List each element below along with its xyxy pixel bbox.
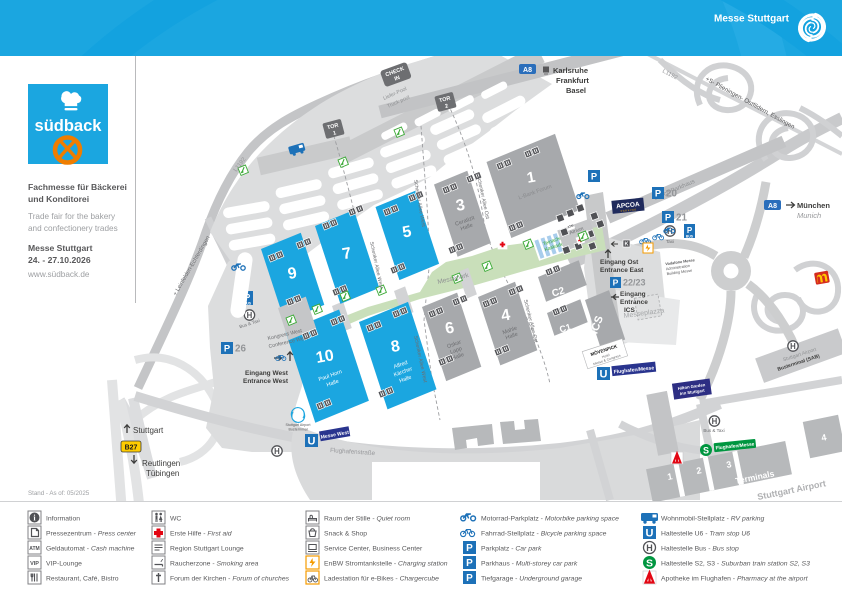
svg-text:Raucherzone - Smoking area: Raucherzone - Smoking area [170,561,259,568]
svg-text:P: P [665,212,671,222]
svg-text:südback: südback [35,117,103,135]
svg-text:Entrance West: Entrance West [243,378,289,385]
svg-text:VIP: VIP [30,561,39,567]
svg-text:Eingang: Eingang [620,291,646,298]
svg-text:Frankfurt: Frankfurt [556,76,589,85]
svg-text:A8: A8 [523,67,532,74]
svg-text:Bus & Taxi: Bus & Taxi [703,428,724,433]
svg-text:A8: A8 [768,203,777,210]
svg-text:Snack & Shop: Snack & Shop [324,531,367,538]
svg-text:Haltestelle U6 - Tram stop U6: Haltestelle U6 - Tram stop U6 [661,531,750,538]
svg-text:Fachmesse für Bäckerei: Fachmesse für Bäckerei [28,182,127,192]
svg-text:ATM: ATM [29,546,39,552]
svg-text:München: München [797,201,830,210]
svg-text:Tübingen: Tübingen [146,469,179,478]
svg-text:and confectionery trades: and confectionery trades [28,224,118,233]
svg-text:Karlsruhe: Karlsruhe [553,66,588,75]
svg-text:24. - 27.10.2026: 24. - 27.10.2026 [28,255,91,265]
svg-text:Forum der Kirchen - Forum of c: Forum der Kirchen - Forum of churches [170,576,290,583]
svg-text:P: P [613,278,619,288]
svg-text:Pressezentrum - Press center: Pressezentrum - Press center [46,531,137,538]
svg-text:und Konditorei: und Konditorei [28,194,89,204]
svg-text:Information: Information [46,516,80,523]
svg-text:www.südback.de: www.südback.de [27,270,90,279]
svg-text:H: H [790,342,796,351]
svg-text:10: 10 [315,347,336,367]
svg-text:Haltestelle Bus - Bus stop: Haltestelle Bus - Bus stop [661,546,739,553]
svg-text:Eingang Ost: Eingang Ost [600,259,639,266]
svg-text:Parkplatz - Car park: Parkplatz - Car park [481,546,542,553]
svg-text:Parkhaus - Multi-storey car pa: Parkhaus - Multi-storey car park [481,561,578,568]
svg-text:Busterminal: Busterminal [289,428,308,432]
svg-text:Messe Stuttgart: Messe Stuttgart [714,14,790,25]
svg-text:Messe Stuttgart: Messe Stuttgart [28,243,93,253]
svg-text:Raum der Stille - Quiet room: Raum der Stille - Quiet room [324,516,410,523]
svg-text:H: H [247,311,253,320]
svg-text:U: U [308,436,316,448]
svg-text:WC: WC [170,516,181,523]
svg-text:Eingang West: Eingang West [245,370,289,377]
svg-text:Stand - As of: 05/2025: Stand - As of: 05/2025 [28,490,90,497]
svg-text:Basel: Basel [566,86,586,95]
svg-text:H: H [712,417,718,426]
svg-text:K: K [625,242,629,248]
svg-text:P: P [224,343,230,353]
svg-text:Taxi: Taxi [666,239,674,244]
svg-text:Fahrrad-Stellplatz - Bicycle p: Fahrrad-Stellplatz - Bicycle parking spa… [481,531,607,538]
svg-text:Geldautomat - Cash machine: Geldautomat - Cash machine [46,546,135,553]
svg-text:20: 20 [666,188,677,199]
svg-text:BUS: BUS [686,235,694,239]
svg-text:U: U [600,369,608,381]
svg-text:Stuttgart: Stuttgart [133,426,164,435]
svg-text:Stuttgart Airport: Stuttgart Airport [286,423,311,427]
svg-text:Entrance: Entrance [620,299,648,306]
svg-text:Service Center, Business Cente: Service Center, Business Center [324,546,423,553]
svg-text:P: P [655,188,661,198]
svg-text:Trade fair for the bakery: Trade fair for the bakery [28,212,116,221]
svg-text:22/23: 22/23 [623,278,646,288]
svg-text:S: S [646,557,653,569]
svg-text:S: S [703,446,709,456]
svg-text:P: P [466,558,473,569]
svg-text:Wohnmobil-Stellplatz - RV park: Wohnmobil-Stellplatz - RV parking [661,516,764,523]
svg-text:U: U [646,528,654,540]
svg-text:Motorrad-Parkplatz - Motorbike: Motorrad-Parkplatz - Motorbike parking s… [481,516,619,523]
svg-text:P: P [466,543,473,554]
svg-text:VIP-Lounge: VIP-Lounge [46,561,82,568]
svg-text:21: 21 [676,212,687,223]
svg-text:EnBW Stromtankstelle - Chargin: EnBW Stromtankstelle - Charging station [324,561,448,568]
svg-text:Restaurant, Café, Bistro: Restaurant, Café, Bistro [46,576,119,583]
svg-text:Region Stuttgart Lounge: Region Stuttgart Lounge [170,546,244,553]
svg-text:H: H [274,447,280,456]
svg-text:Tiefgarage - Underground garag: Tiefgarage - Underground garage [481,576,582,583]
svg-text:P: P [591,171,597,181]
svg-text:Munich: Munich [797,211,821,220]
svg-text:Reutlingen: Reutlingen [142,459,180,468]
svg-text:H: H [646,543,653,553]
svg-text:P: P [466,573,473,584]
svg-text:Ladestation für e-Bikes - Char: Ladestation für e-Bikes - Chargercube [324,576,439,583]
svg-text:Erste Hilfe - First aid: Erste Hilfe - First aid [170,531,232,538]
svg-text:Apotheke im Flughafen - Pharma: Apotheke im Flughafen - Pharmacy at the … [661,576,809,583]
svg-text:Haltestelle S2, S3 - Suburban: Haltestelle S2, S3 - Suburban train stat… [661,561,810,568]
svg-text:26: 26 [235,343,246,354]
svg-text:B27: B27 [125,445,138,452]
svg-text:Entrance East: Entrance East [600,267,644,274]
